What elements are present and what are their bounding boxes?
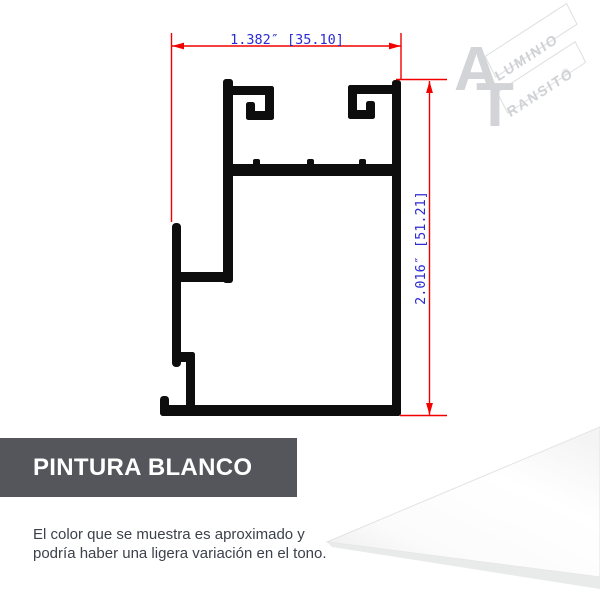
profile-left-upper-wall <box>223 79 233 283</box>
color-disclaimer: El color que se muestra es aproximado y … <box>33 525 333 563</box>
paint-swatch <box>327 427 600 589</box>
arrow-up-icon <box>426 81 433 93</box>
finish-banner: PINTURA BLANCO <box>0 438 297 497</box>
profile-right-hook <box>348 85 394 119</box>
dimension-annotations <box>172 33 448 416</box>
profile-bottom-wall <box>160 405 401 416</box>
product-sheet: A T LUMINIO RANSITO ® <box>0 0 600 600</box>
disclaimer-line-1: El color que se muestra es aproximado y <box>33 525 333 544</box>
height-dimension-label: 2.016″ [51.21] <box>413 191 429 305</box>
profile-step-arm <box>173 272 228 282</box>
profile-cross-section <box>160 79 401 416</box>
profile-inner-lower-wall <box>186 352 195 410</box>
swatch-top-face <box>327 427 600 577</box>
profile-left-hook <box>228 86 274 120</box>
arrow-right-icon <box>389 43 401 50</box>
disclaimer-line-2: podría haber una ligera variación en el … <box>33 544 333 563</box>
profile-right-wall <box>392 80 401 416</box>
profile-outer-fin <box>172 223 181 367</box>
arrow-left-icon <box>172 43 184 50</box>
arrow-down-icon <box>426 403 433 415</box>
profile-middle-web <box>228 159 396 176</box>
profile-bottom-lip <box>160 396 169 416</box>
profile-technical-drawing: 1.382″ [35.10] 2.016″ [51.21] <box>0 0 600 600</box>
finish-banner-label: PINTURA BLANCO <box>0 454 252 482</box>
width-dimension-label: 1.382″ [35.10] <box>230 32 344 48</box>
